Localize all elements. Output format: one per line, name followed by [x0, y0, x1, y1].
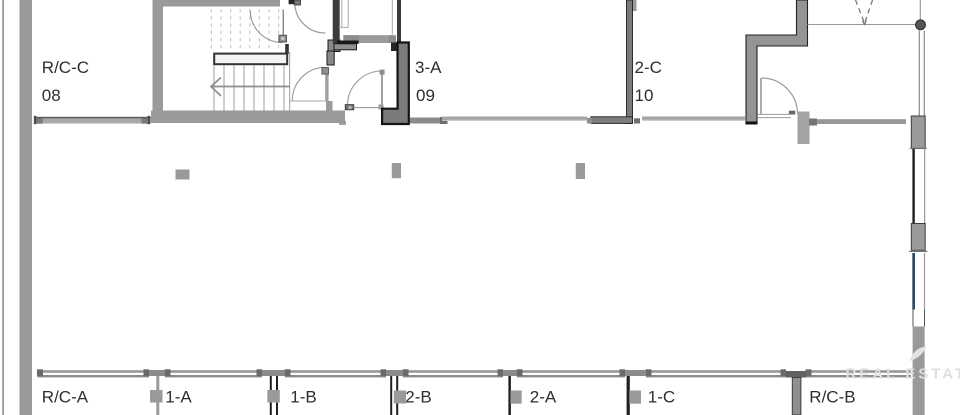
svg-text:09: 09: [416, 86, 435, 105]
svg-text:1-B: 1-B: [290, 388, 316, 407]
svg-text:3-A: 3-A: [415, 58, 442, 77]
svg-text:R/C-C: R/C-C: [42, 58, 89, 77]
svg-text:R/C-A: R/C-A: [42, 388, 89, 407]
svg-text:R/C-B: R/C-B: [809, 388, 855, 407]
svg-text:1-A: 1-A: [165, 388, 192, 407]
svg-text:2-B: 2-B: [405, 388, 431, 407]
svg-text:2-A: 2-A: [530, 388, 557, 407]
svg-text:08: 08: [42, 86, 61, 105]
svg-text:2-C: 2-C: [635, 58, 662, 77]
svg-text:10: 10: [635, 86, 654, 105]
svg-text:1-C: 1-C: [648, 388, 675, 407]
svg-text:REAL ESTATE: REAL ESTATE: [846, 366, 960, 383]
